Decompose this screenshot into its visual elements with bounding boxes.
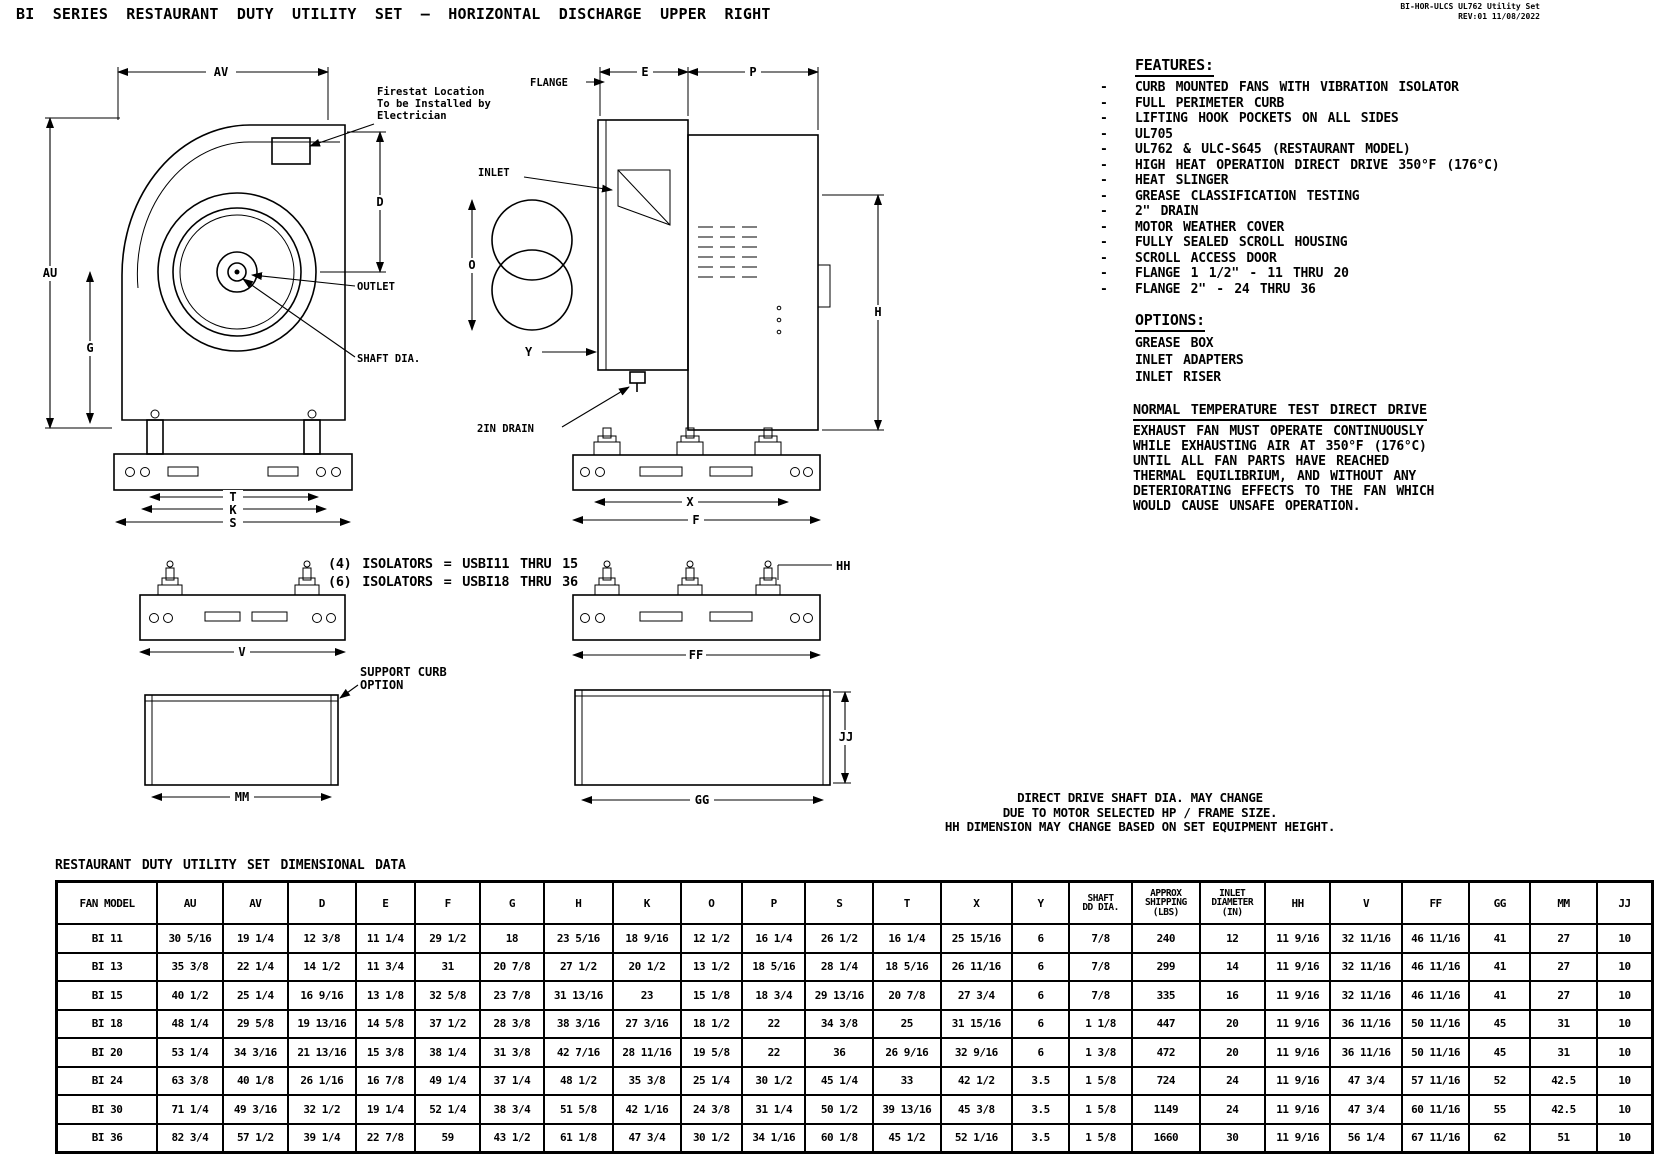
table-cell: 50 11/16: [1402, 1010, 1470, 1039]
table-cell: 6: [1012, 1010, 1069, 1039]
dim-label-v: V: [238, 645, 245, 659]
dim-label-p: P: [749, 65, 756, 79]
table-cell: 1660: [1132, 1124, 1199, 1153]
table-cell: BI 13: [57, 953, 158, 982]
dim-label-f: F: [692, 513, 699, 527]
table-cell: BI 18: [57, 1010, 158, 1039]
right-curb-drawing: GG JJ: [575, 690, 855, 807]
table-cell: 7/8: [1069, 924, 1132, 953]
table-cell: 18 1/2: [681, 1010, 742, 1039]
option-item: INLET RISER: [1135, 369, 1650, 386]
table-cell: 6: [1012, 924, 1069, 953]
table-cell: 30 1/2: [681, 1124, 742, 1153]
feature-item: -SCROLL ACCESS DOOR: [1100, 251, 1650, 267]
feature-item: -UL762 & ULC-S645 (RESTAURANT MODEL): [1100, 142, 1650, 158]
table-cell: 47 3/4: [1330, 1067, 1401, 1096]
feature-text: FLANGE 2" - 24 THRU 36: [1135, 282, 1316, 298]
dim-label-e: E: [641, 65, 648, 79]
table-cell: 7/8: [1069, 981, 1132, 1010]
feature-bullet: -: [1100, 220, 1135, 236]
column-header: Y: [1012, 882, 1069, 925]
table-cell: 34 1/16: [742, 1124, 805, 1153]
dim-label-s: S: [229, 516, 236, 530]
table-cell: 18 5/16: [873, 953, 941, 982]
table-body: BI 1130 5/1619 1/412 3/811 1/429 1/21823…: [57, 924, 1653, 1153]
table-cell: 20: [1200, 1010, 1265, 1039]
feature-text: UL762 & ULC-S645 (RESTAURANT MODEL): [1135, 142, 1410, 158]
feature-item: -FULLY SEALED SCROLL HOUSING: [1100, 235, 1650, 251]
page-title: BI SERIES RESTAURANT DUTY UTILITY SET — …: [16, 5, 771, 23]
table-cell: 49 1/4: [415, 1067, 480, 1096]
table-cell: 26 11/16: [941, 953, 1012, 982]
table-cell: 39 13/16: [873, 1095, 941, 1124]
table-cell: 30 1/2: [742, 1067, 805, 1096]
dim-label-o: O: [468, 258, 475, 272]
table-cell: 10: [1597, 953, 1653, 982]
dim-label-t: T: [229, 490, 236, 504]
firestat-note-line3: Electrician: [377, 110, 447, 122]
column-header: FAN MODEL: [57, 882, 158, 925]
table-cell: 31 15/16: [941, 1010, 1012, 1039]
dim-label-hh: HH: [836, 559, 850, 573]
column-header: AV: [223, 882, 288, 925]
table-cell: 52: [1469, 1067, 1530, 1096]
table-cell: 38 3/4: [480, 1095, 543, 1124]
table-cell: 32 9/16: [941, 1038, 1012, 1067]
table-cell: 56 1/4: [1330, 1124, 1401, 1153]
table-cell: 45: [1469, 1038, 1530, 1067]
dim-label-ff: FF: [689, 648, 703, 662]
table-cell: 12 3/8: [288, 924, 356, 953]
table-cell: 31: [1530, 1038, 1597, 1067]
feature-item: -HIGH HEAT OPERATION DIRECT DRIVE 350°F …: [1100, 158, 1650, 174]
feature-bullet: -: [1100, 127, 1135, 143]
table-cell: 45 1/4: [805, 1067, 873, 1096]
feature-bullet: -: [1100, 96, 1135, 112]
table-cell: 25 1/4: [223, 981, 288, 1010]
table-cell: 10: [1597, 924, 1653, 953]
table-cell: 11 9/16: [1265, 953, 1330, 982]
table-cell: 50 1/2: [805, 1095, 873, 1124]
options-list: GREASE BOXINLET ADAPTERSINLET RISER: [1100, 335, 1650, 386]
table-cell: 22 7/8: [356, 1124, 415, 1153]
table-cell: 31 13/16: [544, 981, 613, 1010]
table-cell: 67 11/16: [1402, 1124, 1470, 1153]
table-cell: 36: [805, 1038, 873, 1067]
support-curb-label-line1: SUPPORT CURB: [360, 665, 447, 679]
table-cell: 6: [1012, 981, 1069, 1010]
table-cell: 13 1/8: [356, 981, 415, 1010]
column-header: H: [544, 882, 613, 925]
options-heading: OPTIONS:: [1135, 311, 1205, 332]
shaft-dia-label: SHAFT DIA.: [357, 353, 420, 365]
table-cell: 45 3/8: [941, 1095, 1012, 1124]
table-cell: 45: [1469, 1010, 1530, 1039]
table-cell: 12: [1200, 924, 1265, 953]
normal-temp-test-heading: NORMAL TEMPERATURE TEST DIRECT DRIVE: [1133, 402, 1427, 421]
features-heading: FEATURES:: [1135, 56, 1214, 77]
normal-temp-test-body: EXHAUST FAN MUST OPERATE CONTINUOUSLYWHI…: [1133, 424, 1650, 514]
left-curb-drawing: MM SUPPORT CURB OPTION: [145, 665, 447, 804]
table-cell: 50 11/16: [1402, 1038, 1470, 1067]
table-cell: 11 9/16: [1265, 924, 1330, 953]
table-cell: 16 1/4: [742, 924, 805, 953]
inlet-label: INLET: [478, 167, 510, 179]
dim-label-mm: MM: [235, 790, 249, 804]
isolator-note-line: (4) ISOLATORS = USBI11 THRU 15: [328, 556, 578, 574]
table-cell: 22: [742, 1038, 805, 1067]
feature-item: -FULL PERIMETER CURB: [1100, 96, 1650, 112]
feature-text: FULL PERIMETER CURB: [1135, 96, 1284, 112]
table-cell: 52 1/4: [415, 1095, 480, 1124]
table-cell: 23: [613, 981, 681, 1010]
table-cell: 16 9/16: [288, 981, 356, 1010]
table-cell: 47 3/4: [1330, 1095, 1401, 1124]
table-cell: 20: [1200, 1038, 1265, 1067]
feature-text: SCROLL ACCESS DOOR: [1135, 251, 1276, 267]
feature-text: GREASE CLASSIFICATION TESTING: [1135, 189, 1359, 205]
table-cell: 10: [1597, 1010, 1653, 1039]
table-cell: 7/8: [1069, 953, 1132, 982]
option-item: GREASE BOX: [1135, 335, 1650, 352]
column-header: SHAFT DD DIA.: [1069, 882, 1132, 925]
table-cell: 31: [1530, 1010, 1597, 1039]
table-cell: 14 1/2: [288, 953, 356, 982]
dim-label-jj: JJ: [839, 730, 853, 744]
table-cell: 11 9/16: [1265, 1038, 1330, 1067]
table-cell: 34 3/8: [805, 1010, 873, 1039]
dim-label-k: K: [229, 503, 237, 517]
right-text-column: FEATURES: -CURB MOUNTED FANS WITH VIBRAT…: [1100, 56, 1650, 514]
table-cell: 41: [1469, 953, 1530, 982]
technical-drawings: AV AU G D T K S: [0, 40, 900, 840]
table-cell: 39 1/4: [288, 1124, 356, 1153]
features-list: -CURB MOUNTED FANS WITH VIBRATION ISOLAT…: [1100, 80, 1650, 297]
option-item: INLET ADAPTERS: [1135, 352, 1650, 369]
doc-ref-line1: BI-HOR-ULCS UL762 Utility Set: [1150, 2, 1540, 12]
feature-bullet: -: [1100, 251, 1135, 267]
column-header: F: [415, 882, 480, 925]
table-cell: 447: [1132, 1010, 1199, 1039]
table-cell: 25 15/16: [941, 924, 1012, 953]
feature-item: -LIFTING HOOK POCKETS ON ALL SIDES: [1100, 111, 1650, 127]
table-cell: BI 24: [57, 1067, 158, 1096]
table-cell: 19 1/4: [356, 1095, 415, 1124]
table-cell: 1 3/8: [1069, 1038, 1132, 1067]
table-cell: 18 3/4: [742, 981, 805, 1010]
table-cell: 1 5/8: [1069, 1067, 1132, 1096]
table-cell: 31: [415, 953, 480, 982]
table-cell: 27 3/16: [613, 1010, 681, 1039]
firestat-note-line1: Firestat Location: [377, 86, 484, 98]
feature-text: HIGH HEAT OPERATION DIRECT DRIVE 350°F (…: [1135, 158, 1499, 174]
table-cell: 19 1/4: [223, 924, 288, 953]
table-cell: 23 7/8: [480, 981, 543, 1010]
dim-label-x: X: [686, 495, 694, 509]
feature-item: -UL705: [1100, 127, 1650, 143]
feature-bullet: -: [1100, 235, 1135, 251]
table-cell: 26 9/16: [873, 1038, 941, 1067]
table-title: RESTAURANT DUTY UTILITY SET DIMENSIONAL …: [55, 858, 406, 873]
table-cell: 55: [1469, 1095, 1530, 1124]
table-cell: 43 1/2: [480, 1124, 543, 1153]
outlet-label: OUTLET: [357, 281, 395, 293]
table-cell: 35 3/8: [157, 953, 222, 982]
table-cell: BI 36: [57, 1124, 158, 1153]
table-cell: 30: [1200, 1124, 1265, 1153]
feature-text: LIFTING HOOK POCKETS ON ALL SIDES: [1135, 111, 1398, 127]
table-cell: 10: [1597, 1124, 1653, 1153]
table-cell: 30 5/16: [157, 924, 222, 953]
table-cell: 26 1/16: [288, 1067, 356, 1096]
support-curb-label-line2: OPTION: [360, 678, 403, 692]
feature-item: -CURB MOUNTED FANS WITH VIBRATION ISOLAT…: [1100, 80, 1650, 96]
table-cell: 19 13/16: [288, 1010, 356, 1039]
table-cell: BI 20: [57, 1038, 158, 1067]
table-row: BI 1130 5/1619 1/412 3/811 1/429 1/21823…: [57, 924, 1653, 953]
table-cell: 31 3/8: [480, 1038, 543, 1067]
table-cell: 10: [1597, 981, 1653, 1010]
feature-text: MOTOR WEATHER COVER: [1135, 220, 1284, 236]
table-cell: BI 30: [57, 1095, 158, 1124]
column-header: X: [941, 882, 1012, 925]
table-cell: 1 1/8: [1069, 1010, 1132, 1039]
table-cell: 32 5/8: [415, 981, 480, 1010]
table-cell: 57 1/2: [223, 1124, 288, 1153]
table-cell: 24: [1200, 1067, 1265, 1096]
dim-label-d: D: [376, 195, 383, 209]
table-cell: 24: [1200, 1095, 1265, 1124]
table-cell: 3.5: [1012, 1095, 1069, 1124]
table-cell: 6: [1012, 953, 1069, 982]
table-row: BI 2053 1/434 3/1621 13/1615 3/838 1/431…: [57, 1038, 1653, 1067]
table-cell: 10: [1597, 1038, 1653, 1067]
table-cell: 18 5/16: [742, 953, 805, 982]
note-line: WOULD CAUSE UNSAFE OPERATION.: [1133, 499, 1650, 514]
dim-label-au: AU: [43, 266, 57, 280]
table-cell: 299: [1132, 953, 1199, 982]
table-row: BI 1848 1/429 5/819 13/1614 5/837 1/228 …: [57, 1010, 1653, 1039]
table-cell: 18: [480, 924, 543, 953]
dim-label-h: H: [874, 305, 881, 319]
table-cell: 16 1/4: [873, 924, 941, 953]
table-cell: 27: [1530, 924, 1597, 953]
doc-reference: BI-HOR-ULCS UL762 Utility Set REV:01 11/…: [1150, 2, 1540, 22]
table-cell: 35 3/8: [613, 1067, 681, 1096]
column-header: JJ: [1597, 882, 1653, 925]
normal-temp-test-note: NORMAL TEMPERATURE TEST DIRECT DRIVE EXH…: [1133, 402, 1650, 514]
column-header: O: [681, 882, 742, 925]
table-cell: 32 11/16: [1330, 953, 1401, 982]
table-cell: 29 5/8: [223, 1010, 288, 1039]
table-cell: 38 1/4: [415, 1038, 480, 1067]
side-view-drawing: AV AU G D T K S: [33, 65, 491, 530]
shaft-note-line: DUE TO MOTOR SELECTED HP / FRAME SIZE.: [880, 806, 1400, 821]
feature-item: -2" DRAIN: [1100, 204, 1650, 220]
table-cell: 34 3/16: [223, 1038, 288, 1067]
table-cell: 15 1/8: [681, 981, 742, 1010]
table-row: BI 2463 3/840 1/826 1/1616 7/849 1/437 1…: [57, 1067, 1653, 1096]
table-cell: 32 11/16: [1330, 981, 1401, 1010]
table-cell: 51: [1530, 1124, 1597, 1153]
table-cell: 12 1/2: [681, 924, 742, 953]
header-row: FAN MODELAUAVDEFGHKOPSTXYSHAFT DD DIA.AP…: [57, 882, 1653, 925]
table-cell: 11 9/16: [1265, 1124, 1330, 1153]
table-cell: 37 1/4: [480, 1067, 543, 1096]
note-line: DETERIORATING EFFECTS TO THE FAN WHICH: [1133, 484, 1650, 499]
table-head: FAN MODELAUAVDEFGHKOPSTXYSHAFT DD DIA.AP…: [57, 882, 1653, 925]
table-cell: 40 1/8: [223, 1067, 288, 1096]
flange-label: FLANGE: [530, 77, 568, 89]
table-cell: 42.5: [1530, 1095, 1597, 1124]
column-header: K: [613, 882, 681, 925]
table-cell: 11 9/16: [1265, 1067, 1330, 1096]
table-cell: 28 11/16: [613, 1038, 681, 1067]
table-cell: 27: [1530, 953, 1597, 982]
table-cell: 14 5/8: [356, 1010, 415, 1039]
table-row: BI 3682 3/457 1/239 1/422 7/85943 1/261 …: [57, 1124, 1653, 1153]
table-cell: 10: [1597, 1095, 1653, 1124]
table-cell: 26 1/2: [805, 924, 873, 953]
table-cell: 42.5: [1530, 1067, 1597, 1096]
feature-item: -MOTOR WEATHER COVER: [1100, 220, 1650, 236]
column-header: P: [742, 882, 805, 925]
drain-label: 2IN DRAIN: [477, 423, 534, 435]
left-rail-drawing: V: [140, 561, 345, 659]
column-header: D: [288, 882, 356, 925]
column-header: E: [356, 882, 415, 925]
table-cell: 59: [415, 1124, 480, 1153]
datasheet-page: BI SERIES RESTAURANT DUTY UTILITY SET — …: [0, 0, 1654, 1160]
table-cell: 11 9/16: [1265, 1010, 1330, 1039]
table-cell: 29 1/2: [415, 924, 480, 953]
table-cell: 46 11/16: [1402, 953, 1470, 982]
feature-item: -FLANGE 1 1/2" - 11 THRU 20: [1100, 266, 1650, 282]
table-cell: 20 7/8: [873, 981, 941, 1010]
table-cell: 16 7/8: [356, 1067, 415, 1096]
doc-ref-line2: REV:01 11/08/2022: [1150, 12, 1540, 22]
table-cell: 18 9/16: [613, 924, 681, 953]
column-header: FF: [1402, 882, 1470, 925]
table-cell: 28 1/4: [805, 953, 873, 982]
table-cell: 28 3/8: [480, 1010, 543, 1039]
table-cell: 49 3/16: [223, 1095, 288, 1124]
table-cell: 22: [742, 1010, 805, 1039]
feature-bullet: -: [1100, 204, 1135, 220]
table-cell: 27: [1530, 981, 1597, 1010]
table-cell: 47 3/4: [613, 1124, 681, 1153]
table-cell: 42 7/16: [544, 1038, 613, 1067]
table-cell: 25 1/4: [681, 1067, 742, 1096]
table-cell: 23 5/16: [544, 924, 613, 953]
table-cell: 48 1/4: [157, 1010, 222, 1039]
table-cell: 60 11/16: [1402, 1095, 1470, 1124]
table-cell: 24 3/8: [681, 1095, 742, 1124]
column-header: APPROX SHIPPING (LBS): [1132, 882, 1199, 925]
table-cell: 61 1/8: [544, 1124, 613, 1153]
table-cell: 45 1/2: [873, 1124, 941, 1153]
feature-bullet: -: [1100, 111, 1135, 127]
table-cell: 335: [1132, 981, 1199, 1010]
table-cell: 48 1/2: [544, 1067, 613, 1096]
table-cell: 29 13/16: [805, 981, 873, 1010]
table-cell: 62: [1469, 1124, 1530, 1153]
feature-text: 2" DRAIN: [1135, 204, 1198, 220]
table-cell: 36 11/16: [1330, 1038, 1401, 1067]
table-cell: 16: [1200, 981, 1265, 1010]
table-cell: 33: [873, 1067, 941, 1096]
table-cell: 36 11/16: [1330, 1010, 1401, 1039]
dim-label-gg: GG: [695, 793, 709, 807]
feature-bullet: -: [1100, 266, 1135, 282]
dimensional-data-table: FAN MODELAUAVDEFGHKOPSTXYSHAFT DD DIA.AP…: [55, 880, 1654, 1154]
table-cell: 42 1/2: [941, 1067, 1012, 1096]
table-cell: 1 5/8: [1069, 1095, 1132, 1124]
column-header: AU: [157, 882, 222, 925]
table-cell: 472: [1132, 1038, 1199, 1067]
feature-bullet: -: [1100, 173, 1135, 189]
feature-bullet: -: [1100, 158, 1135, 174]
table-cell: 724: [1132, 1067, 1199, 1096]
table-cell: 1149: [1132, 1095, 1199, 1124]
shaft-dia-note: DIRECT DRIVE SHAFT DIA. MAY CHANGEDUE TO…: [880, 791, 1400, 835]
column-header: HH: [1265, 882, 1330, 925]
feature-item: -GREASE CLASSIFICATION TESTING: [1100, 189, 1650, 205]
feature-text: CURB MOUNTED FANS WITH VIBRATION ISOLATO…: [1135, 80, 1459, 96]
feature-bullet: -: [1100, 282, 1135, 298]
note-line: THERMAL EQUILIBRIUM, AND WITHOUT ANY: [1133, 469, 1650, 484]
column-header: GG: [1469, 882, 1530, 925]
table-cell: 3.5: [1012, 1124, 1069, 1153]
table-cell: 22 1/4: [223, 953, 288, 982]
table-cell: 27 1/2: [544, 953, 613, 982]
feature-text: UL705: [1135, 127, 1173, 143]
table-cell: 32 11/16: [1330, 924, 1401, 953]
table-cell: 11 3/4: [356, 953, 415, 982]
table-cell: 1 5/8: [1069, 1124, 1132, 1153]
table-cell: 14: [1200, 953, 1265, 982]
table-cell: 10: [1597, 1067, 1653, 1096]
dim-label-av: AV: [214, 65, 228, 79]
column-header: T: [873, 882, 941, 925]
table-cell: 11 9/16: [1265, 1095, 1330, 1124]
table-cell: 52 1/16: [941, 1124, 1012, 1153]
table-cell: BI 11: [57, 924, 158, 953]
table-cell: 13 1/2: [681, 953, 742, 982]
note-line: EXHAUST FAN MUST OPERATE CONTINUOUSLY: [1133, 424, 1650, 439]
table-cell: 20 1/2: [613, 953, 681, 982]
dim-label-y: Y: [525, 345, 533, 359]
column-header: G: [480, 882, 543, 925]
table-cell: 11 1/4: [356, 924, 415, 953]
table-cell: 3.5: [1012, 1067, 1069, 1096]
table-cell: 53 1/4: [157, 1038, 222, 1067]
table-cell: 240: [1132, 924, 1199, 953]
table-cell: 11 9/16: [1265, 981, 1330, 1010]
feature-text: FULLY SEALED SCROLL HOUSING: [1135, 235, 1347, 251]
table-cell: 41: [1469, 924, 1530, 953]
note-line: WHILE EXHAUSTING AIR AT 350°F (176°C): [1133, 439, 1650, 454]
feature-bullet: -: [1100, 189, 1135, 205]
table-cell: 63 3/8: [157, 1067, 222, 1096]
table-cell: 41: [1469, 981, 1530, 1010]
table-cell: 27 3/4: [941, 981, 1012, 1010]
feature-bullet: -: [1100, 80, 1135, 96]
table-cell: 37 1/2: [415, 1010, 480, 1039]
table-row: BI 1540 1/225 1/416 9/1613 1/832 5/823 7…: [57, 981, 1653, 1010]
table-cell: 60 1/8: [805, 1124, 873, 1153]
column-header: V: [1330, 882, 1401, 925]
